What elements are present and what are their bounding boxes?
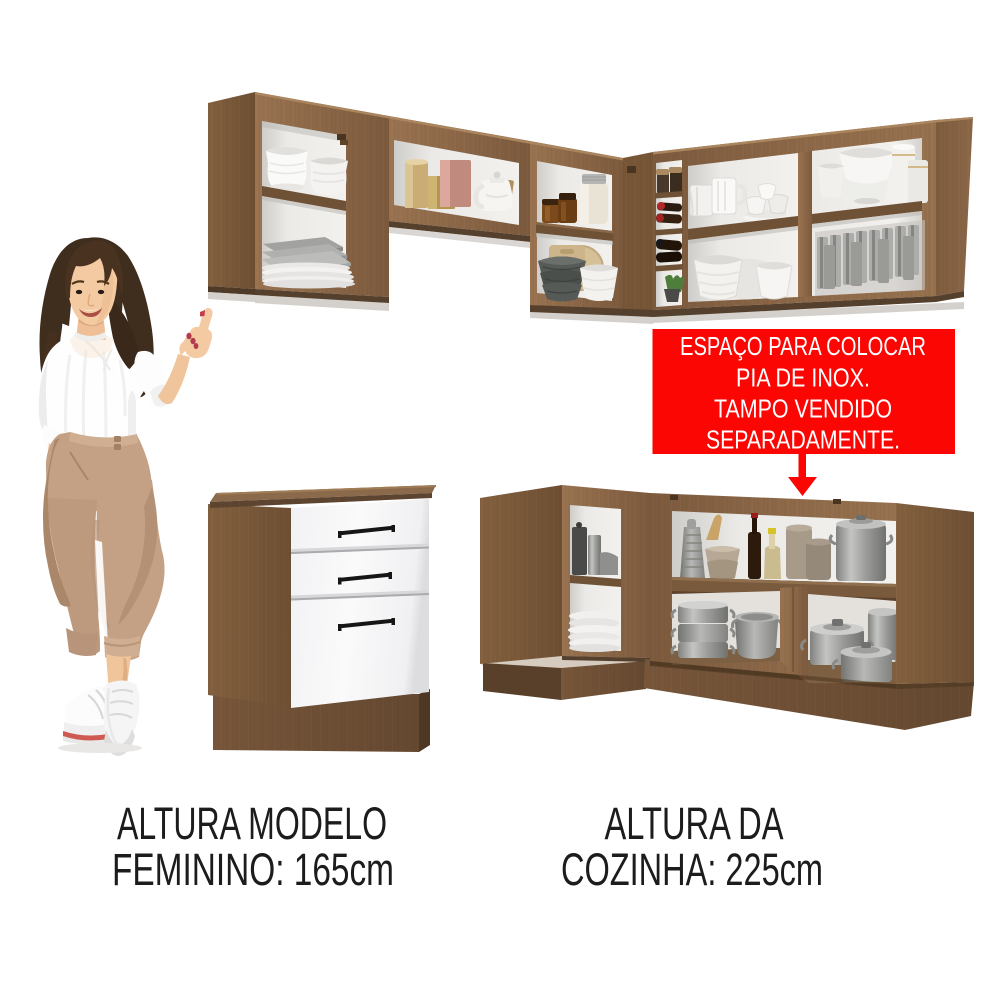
svg-text:PIA DE INOX.: PIA DE INOX. (736, 365, 870, 393)
svg-text:TAMPO VENDIDO: TAMPO VENDIDO (714, 396, 892, 424)
svg-text:ALTURA DA: ALTURA DA (605, 798, 784, 849)
svg-text:ALTURA MODELO: ALTURA MODELO (117, 798, 387, 849)
svg-text:COZINHA: 225cm: COZINHA: 225cm (561, 844, 823, 895)
svg-text:FEMININO: 165cm: FEMININO: 165cm (112, 844, 394, 895)
svg-text:ESPAÇO PARA COLOCAR: ESPAÇO PARA COLOCAR (680, 333, 926, 361)
svg-text:SEPARADAMENTE.: SEPARADAMENTE. (706, 427, 900, 455)
